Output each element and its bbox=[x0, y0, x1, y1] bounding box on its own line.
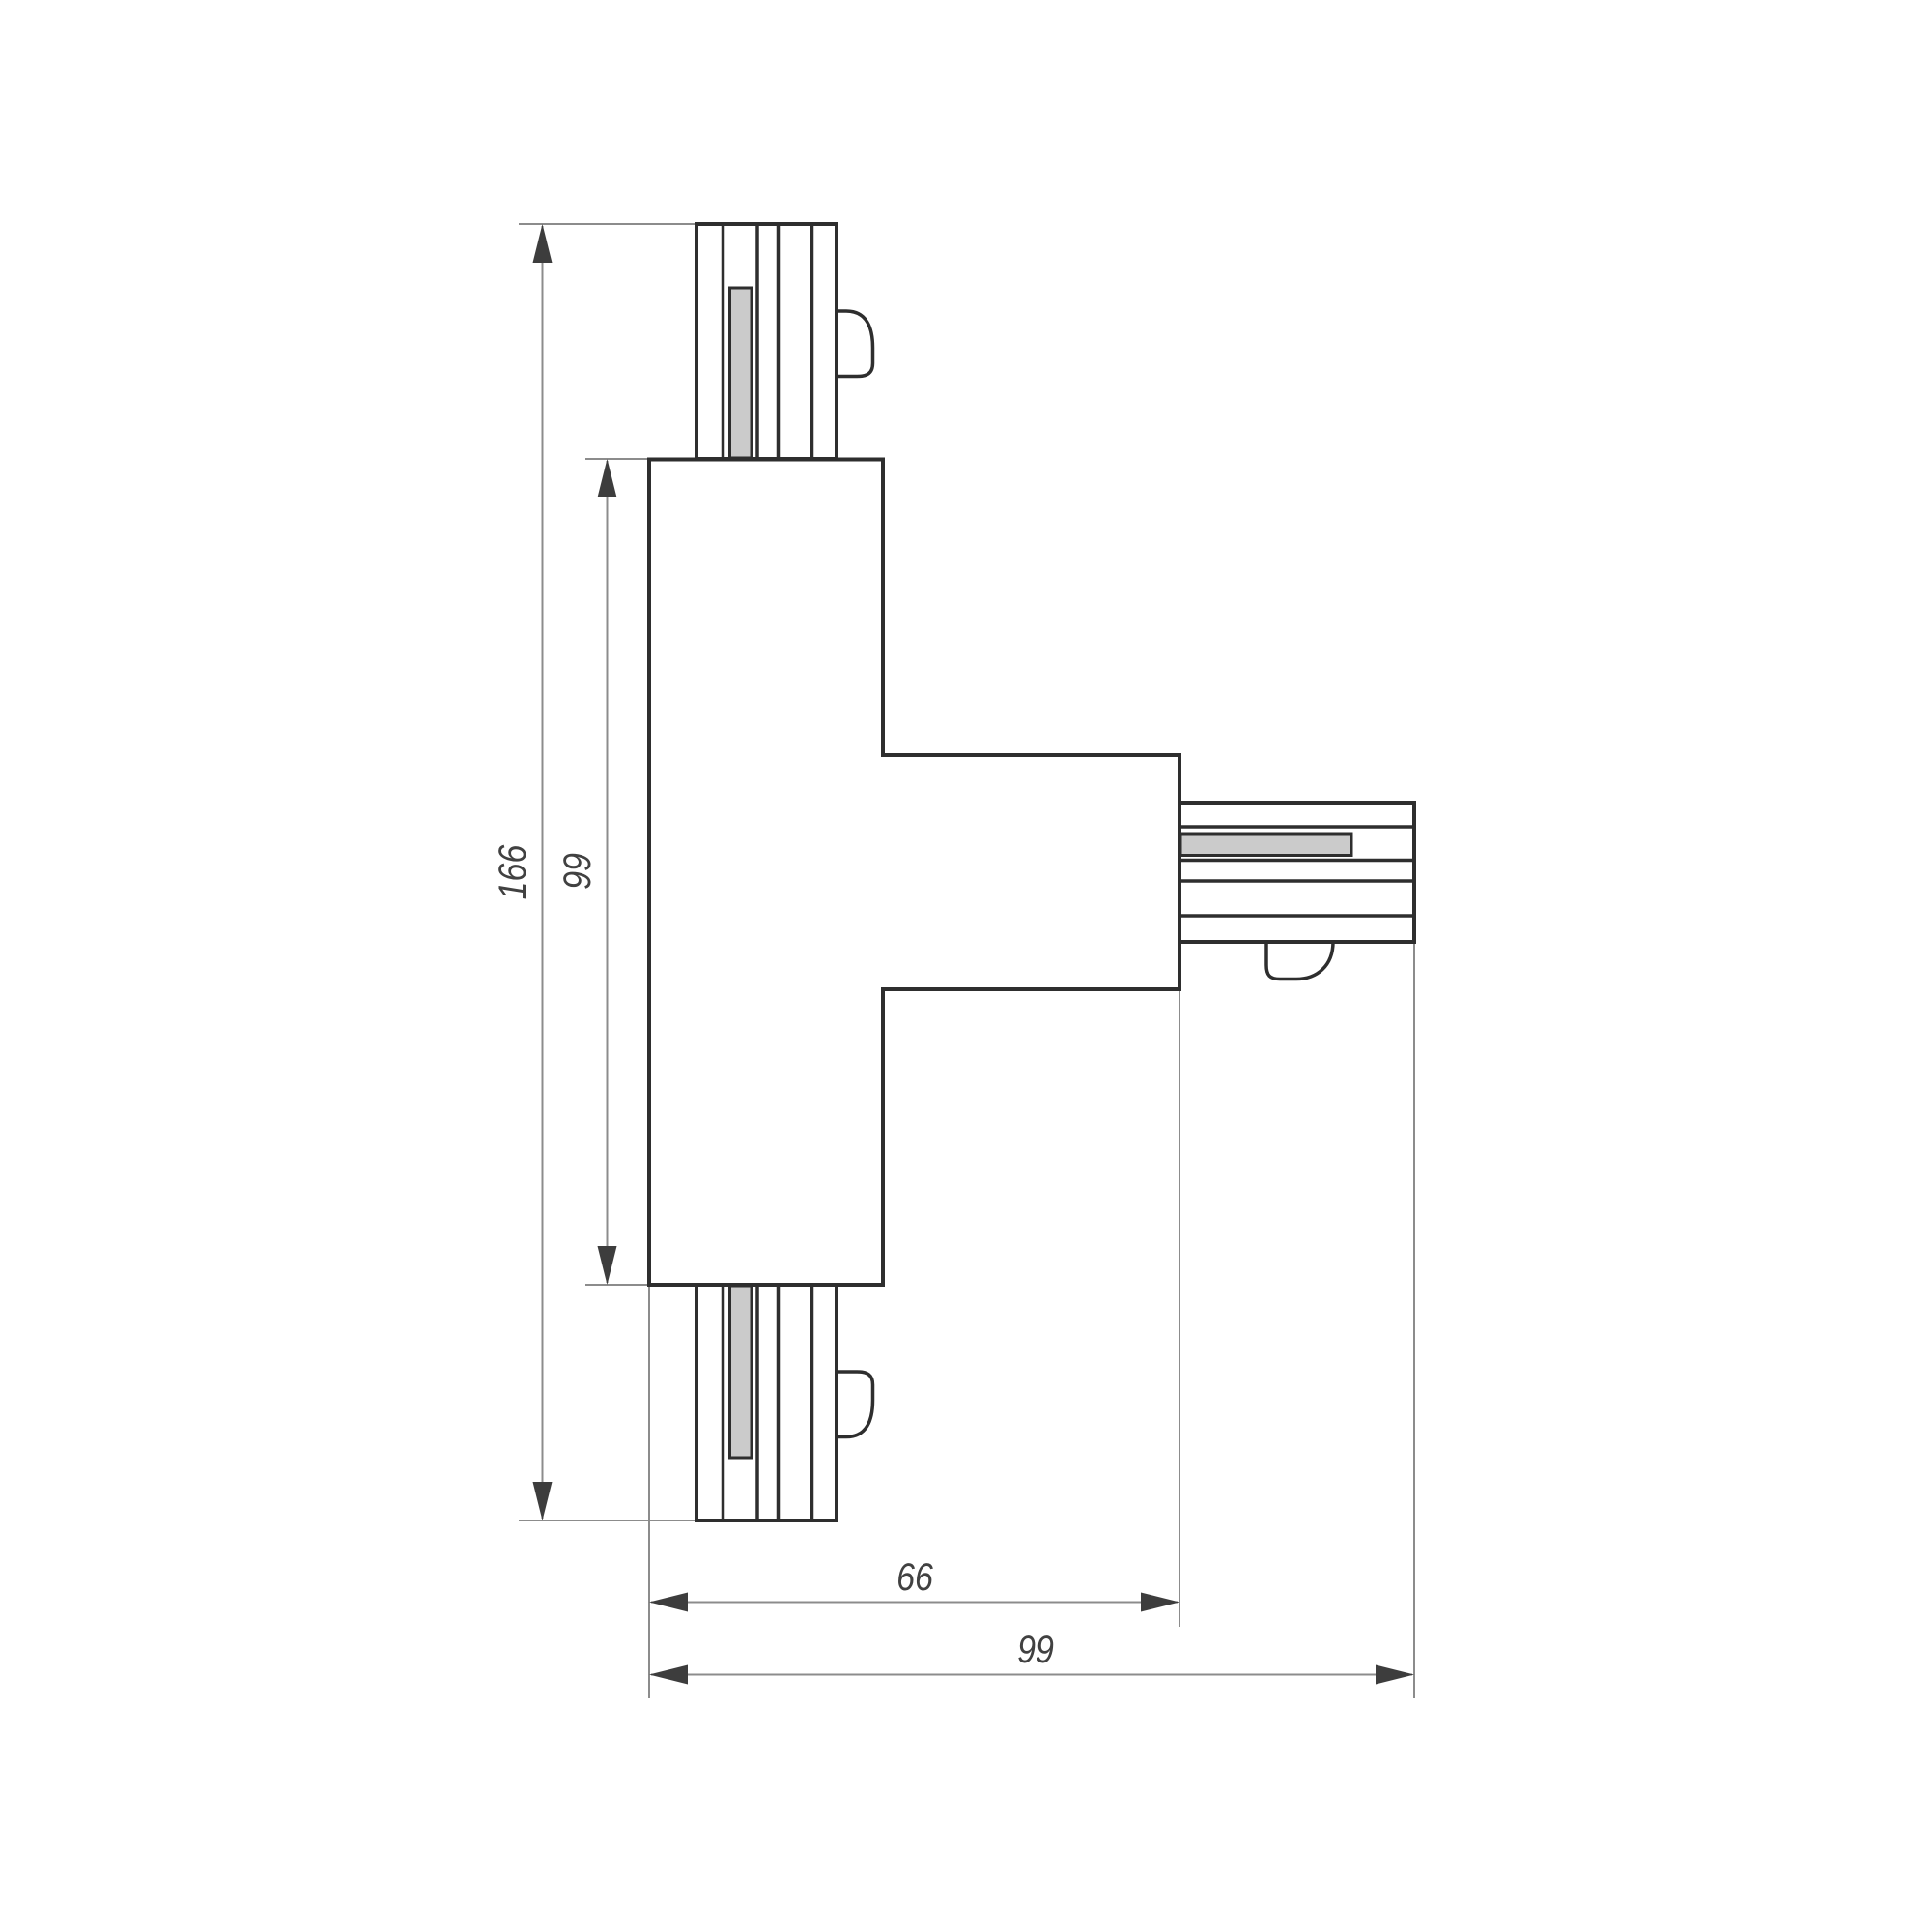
dimension-label-166: 166 bbox=[490, 844, 533, 899]
dimension-total-height: 166 bbox=[490, 224, 552, 1520]
arrowhead-99h-left bbox=[649, 1665, 688, 1685]
top-connector-clip-tab bbox=[837, 311, 873, 377]
drawing-canvas: 166 99 66 99 bbox=[0, 0, 1932, 1932]
arrowhead-99v-bottom bbox=[598, 1246, 617, 1285]
bottom-connector-outline bbox=[696, 1285, 837, 1520]
extension-lines bbox=[519, 224, 1414, 1698]
right-connector bbox=[1179, 803, 1414, 980]
arrowhead-66-right bbox=[1141, 1593, 1179, 1612]
top-connector bbox=[696, 224, 873, 459]
right-connector-clip-tab bbox=[1266, 942, 1333, 980]
connector-body-outline bbox=[649, 460, 1179, 1286]
arrowhead-66-left bbox=[649, 1593, 688, 1612]
right-connector-outline bbox=[1179, 803, 1414, 942]
bottom-connector-contact-strip bbox=[730, 1286, 753, 1458]
right-connector-contact-strip bbox=[1180, 834, 1351, 856]
dimension-label-99h: 99 bbox=[1017, 1627, 1054, 1670]
arrowhead-99v-top bbox=[598, 459, 617, 497]
top-connector-outline bbox=[696, 224, 837, 459]
dimension-arm-span: 66 bbox=[649, 1554, 1179, 1611]
bottom-connector-clip-tab bbox=[837, 1372, 873, 1437]
arrowhead-99h-right bbox=[1376, 1665, 1414, 1685]
dimension-total-width: 99 bbox=[649, 1627, 1414, 1684]
dimension-label-99v: 99 bbox=[554, 853, 598, 890]
dimension-body-height: 99 bbox=[554, 459, 616, 1285]
technical-drawing: 166 99 66 99 bbox=[0, 0, 1932, 1932]
bottom-connector bbox=[696, 1285, 873, 1520]
top-connector-contact-strip bbox=[730, 288, 753, 458]
arrowhead-166-top bbox=[533, 224, 553, 263]
arrowhead-166-bottom bbox=[533, 1482, 553, 1520]
dimension-label-66: 66 bbox=[896, 1554, 933, 1598]
